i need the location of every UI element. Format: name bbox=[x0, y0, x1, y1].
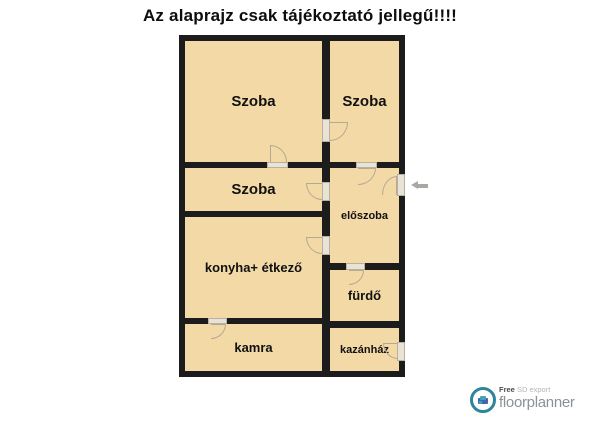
room-label: kazánház bbox=[340, 344, 389, 356]
door-opening-eloszoba-furdo bbox=[346, 263, 365, 270]
door-opening-entrance bbox=[397, 174, 405, 196]
door-opening-szoba1-szoba2 bbox=[322, 119, 330, 142]
room-label: fürdő bbox=[348, 288, 381, 303]
door-opening-kazanhaz bbox=[397, 342, 405, 361]
room-label: kamra bbox=[234, 340, 272, 355]
floorplanner-brand: floorplanner bbox=[499, 395, 575, 411]
logo-glyph bbox=[477, 395, 489, 406]
room-konyha-etkezo: konyha+ étkező bbox=[185, 217, 322, 318]
room-label: konyha+ étkező bbox=[205, 260, 302, 275]
watermark-tagline: Free SD export bbox=[499, 386, 575, 394]
free-label: Free bbox=[499, 385, 515, 394]
room-szoba-3: Szoba bbox=[185, 168, 322, 211]
floorplan: Szoba Szoba Szoba előszoba konyha+ étkez… bbox=[179, 35, 405, 377]
arrow-shaft bbox=[418, 184, 428, 188]
room-szoba-2: Szoba bbox=[330, 41, 399, 162]
door-opening-szoba1-szoba3 bbox=[267, 162, 288, 168]
floorplanner-logo-icon bbox=[470, 387, 496, 413]
export-label: SD export bbox=[517, 385, 550, 394]
door-opening-szoba3-eloszoba bbox=[322, 182, 330, 201]
arrow-head bbox=[411, 181, 418, 189]
room-kamra: kamra bbox=[185, 324, 322, 371]
room-label: Szoba bbox=[231, 93, 275, 110]
room-label: Szoba bbox=[342, 93, 386, 110]
page-title: Az alaprajz csak tájékoztató jellegű!!!! bbox=[0, 6, 600, 26]
room-label: előszoba bbox=[341, 210, 388, 222]
door-opening-konyha-eloszoba bbox=[322, 236, 330, 255]
floorplanner-watermark: Free SD export floorplanner bbox=[468, 385, 594, 417]
room-label: Szoba bbox=[231, 181, 275, 198]
room-furdo: fürdő bbox=[330, 270, 399, 321]
watermark-text: Free SD export floorplanner bbox=[499, 386, 575, 411]
room-szoba-1: Szoba bbox=[185, 41, 322, 162]
entrance-arrow-icon bbox=[411, 181, 429, 190]
